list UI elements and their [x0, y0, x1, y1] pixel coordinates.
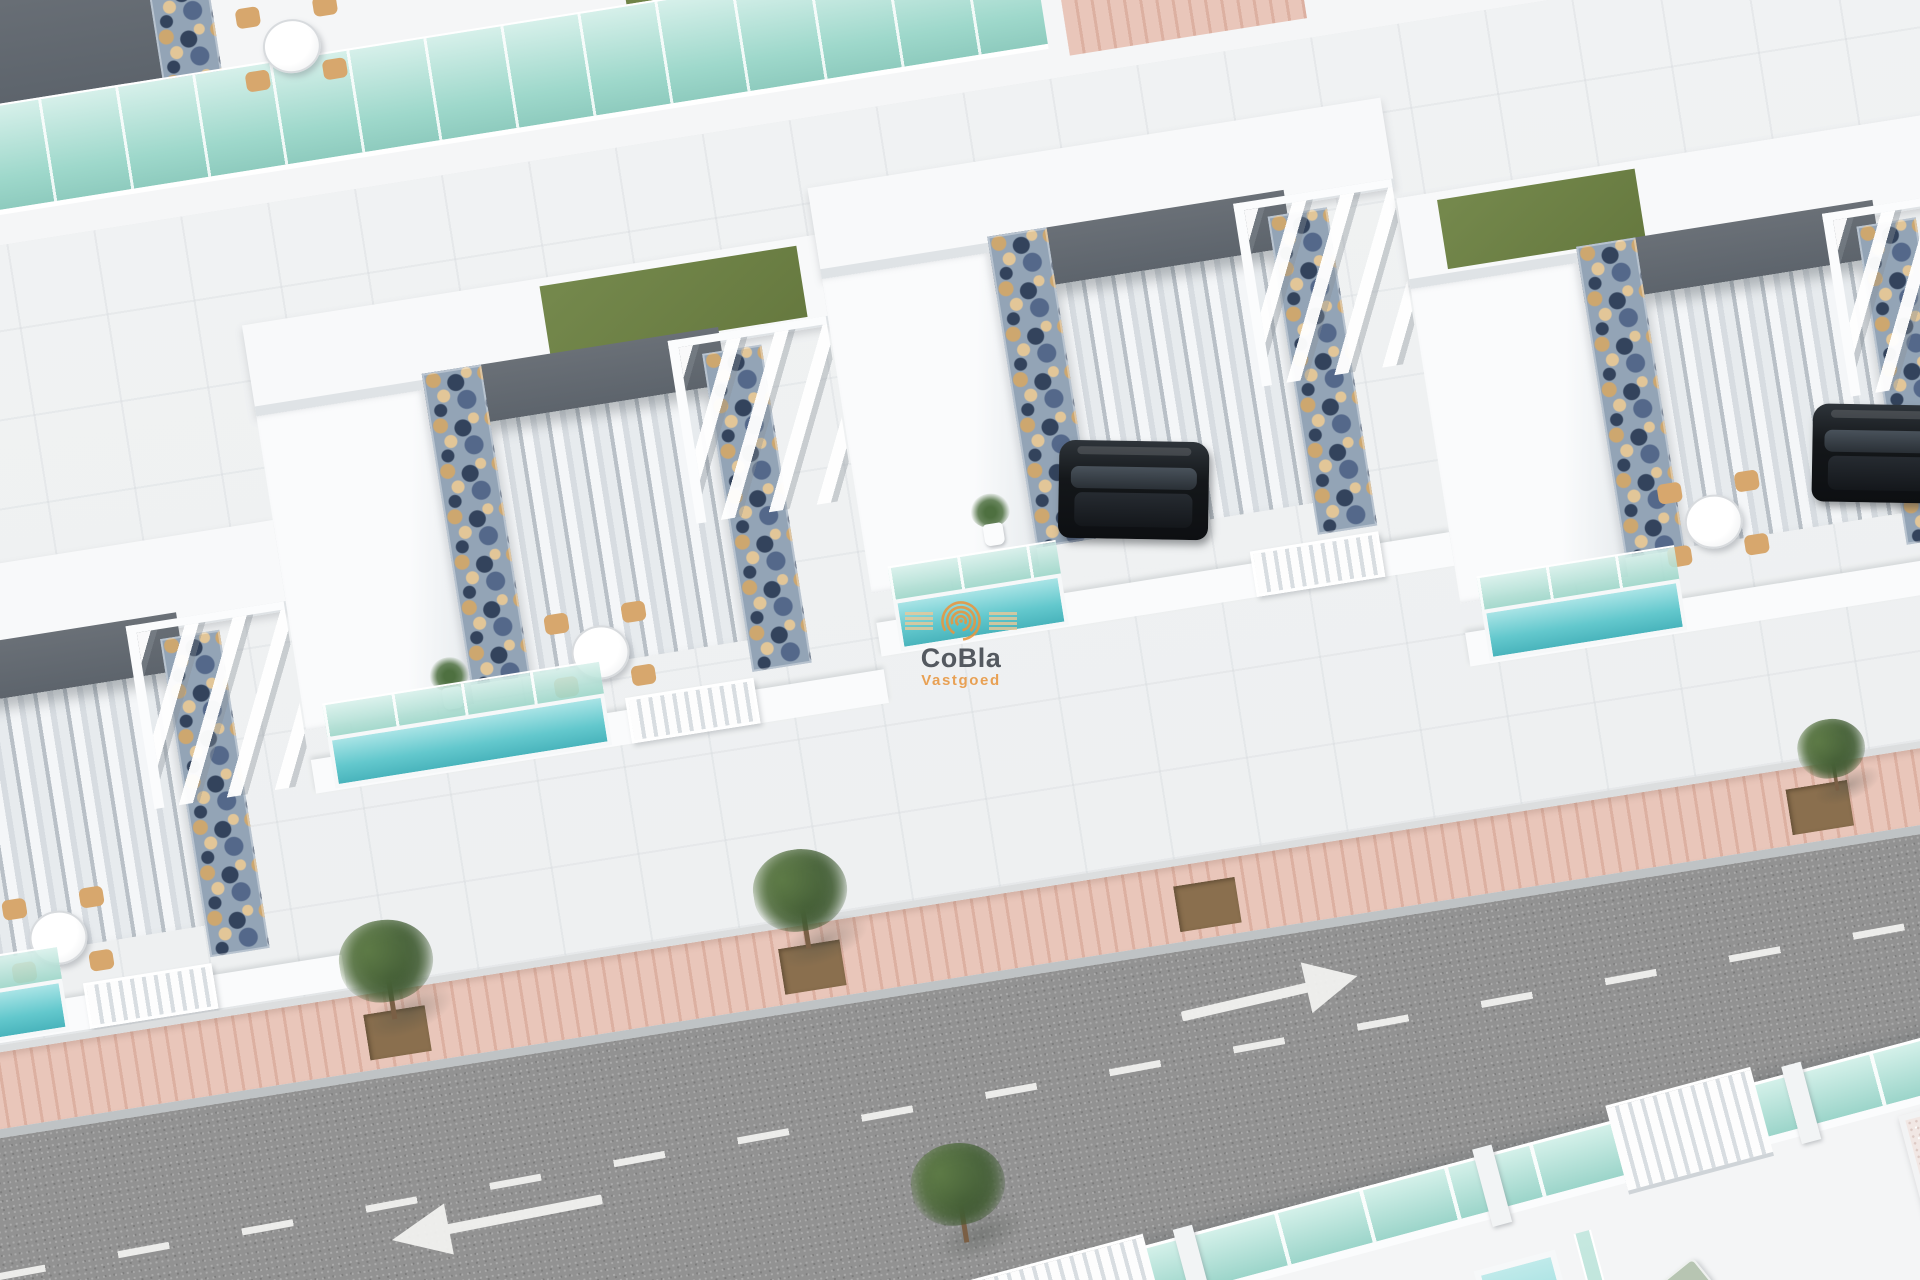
- pergola: [126, 601, 313, 809]
- tree-pit: [1173, 877, 1241, 932]
- arrow-head: [387, 1204, 454, 1266]
- brand-name: CoBla: [886, 644, 1036, 672]
- plunge-pool: [1474, 1250, 1666, 1280]
- logo-center-dot: [959, 619, 963, 623]
- driveway-gate: [1250, 531, 1386, 597]
- plant-pot: [982, 522, 1005, 547]
- villa-facade: [242, 235, 899, 854]
- car-hood-highlight: [1831, 410, 1920, 420]
- tree-pit: [1786, 780, 1854, 835]
- brand-watermark: CoBla Vastgoed: [886, 598, 1036, 690]
- car-hood-highlight: [1077, 446, 1191, 456]
- car-roof: [1074, 492, 1193, 528]
- round-table: [1681, 490, 1747, 552]
- parked-car-black: [1811, 403, 1920, 504]
- round-table: [259, 15, 325, 77]
- potted-palm: [968, 491, 1016, 549]
- pergola: [1233, 179, 1420, 387]
- car-roof: [1828, 456, 1920, 492]
- villa-facade: [1396, 108, 1920, 727]
- sun-lounger: [1621, 1257, 1714, 1280]
- concentric-rings-logo-icon: [895, 598, 1027, 644]
- car-windshield: [1824, 430, 1920, 454]
- wicker-chair: [1, 897, 28, 921]
- car-windshield: [1071, 466, 1197, 490]
- arrow-head: [1301, 951, 1363, 1013]
- tree-pit: [778, 940, 846, 995]
- arrow-shaft: [1181, 982, 1310, 1021]
- tree-pit: [363, 1005, 431, 1060]
- wicker-chair: [1656, 481, 1683, 505]
- wicker-chair: [543, 612, 570, 636]
- aerial-render: CoBla Vastgoed: [0, 0, 1920, 1280]
- arrow-shaft: [444, 1194, 603, 1234]
- pergola: [668, 316, 855, 524]
- wicker-chair: [234, 6, 261, 30]
- balcony-dining-set: [232, 0, 354, 105]
- brand-subtitle: Vastgoed: [886, 672, 1036, 690]
- parked-car-black: [1058, 440, 1210, 541]
